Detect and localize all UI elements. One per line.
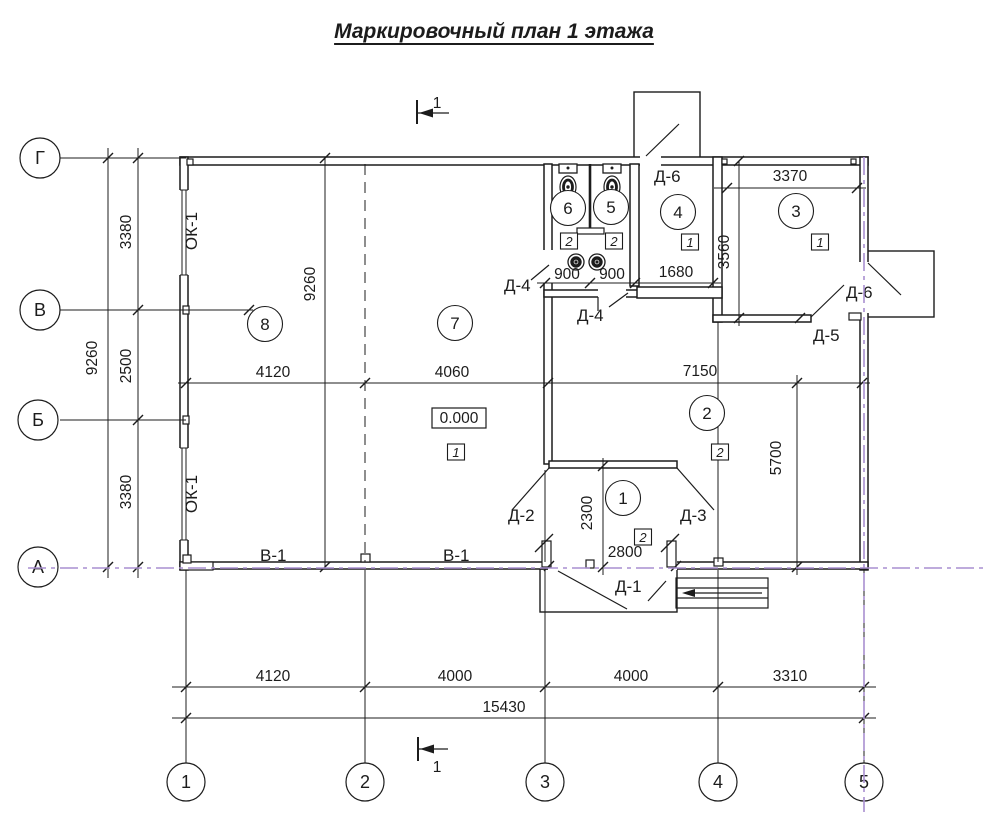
- room-number-8: 8: [260, 315, 269, 334]
- room-number-7: 7: [450, 314, 459, 333]
- axis-label-b: Б: [32, 410, 44, 430]
- mark-room-4: 1: [686, 235, 693, 250]
- axis-label-2: 2: [360, 772, 370, 792]
- wall-top: [180, 157, 868, 165]
- label-d3: Д-3: [680, 506, 707, 525]
- swing-d2: [512, 468, 549, 510]
- mark-room-1: 2: [638, 530, 647, 545]
- label-d2: Д-2: [508, 506, 535, 525]
- level-mark-value: 0.000: [440, 410, 479, 427]
- section-mark-bottom: 1: [418, 737, 448, 776]
- label-d4-b: Д-4: [577, 306, 604, 325]
- dim-3380-top: 3380: [118, 214, 135, 249]
- mark-room-7: 1: [452, 445, 459, 460]
- mark-room-6: 2: [564, 234, 573, 249]
- wall-wc-room4: [630, 164, 639, 286]
- label-v1-right: В-1: [443, 546, 469, 565]
- section-arrow-bottom: [420, 745, 434, 754]
- dim-15430: 15430: [482, 699, 525, 716]
- dim-4120-mid: 4120: [256, 364, 291, 381]
- opening-top-door: [640, 155, 661, 167]
- entrance-porch: [540, 569, 677, 612]
- dim-5700: 5700: [768, 440, 785, 475]
- dim-3310: 3310: [773, 668, 808, 685]
- plan-canvas: 1 1 Г В Б А 1 2 3 4: [0, 0, 988, 817]
- label-ok1-bottom: ОК-1: [182, 475, 201, 513]
- label-d6-top: Д-6: [654, 167, 681, 186]
- dim-900-right: 900: [599, 266, 625, 283]
- dim-3560: 3560: [716, 234, 733, 269]
- section-number-bottom: 1: [433, 759, 442, 776]
- label-v1-left: В-1: [260, 546, 286, 565]
- mark-room-5: 2: [609, 234, 618, 249]
- swing-d3: [677, 468, 714, 510]
- dim-4120-bottom: 4120: [256, 668, 291, 685]
- axis-label-3: 3: [540, 772, 550, 792]
- dimension-ticks: [103, 153, 869, 723]
- label-d6-right: Д-6: [846, 283, 873, 302]
- axis-label-a: А: [32, 557, 44, 577]
- dim-7150: 7150: [683, 363, 718, 380]
- wall-room4-bottom: [637, 287, 722, 298]
- dimension-lines: [108, 148, 876, 718]
- axis-label-v: В: [34, 300, 46, 320]
- right-porch: [866, 251, 934, 317]
- mark-room-2: 2: [715, 445, 724, 460]
- dim-4000-left: 4000: [438, 668, 473, 685]
- dim-3380-bottom: 3380: [118, 474, 135, 509]
- room-number-6: 6: [563, 199, 572, 218]
- dim-9260-inplan: 9260: [302, 266, 319, 301]
- steps-direction-arrow: [682, 589, 695, 597]
- dim-9260-left: 9260: [84, 340, 101, 375]
- axis-labels: Г В Б А 1 2 3 4 5: [32, 148, 869, 792]
- dim-4060: 4060: [435, 364, 470, 381]
- wc-partition-stub: [577, 228, 604, 234]
- leader-d1: [648, 581, 666, 601]
- section-number-top: 1: [433, 95, 442, 112]
- dim-2800: 2800: [608, 544, 643, 561]
- axis-bubbles: [18, 138, 883, 801]
- label-ok1-top: ОК-1: [182, 212, 201, 250]
- axis-label-1: 1: [181, 772, 191, 792]
- dim-1680: 1680: [659, 264, 694, 281]
- label-d4-a: Д-4: [504, 276, 531, 295]
- floor-plan-drawing: Маркировочный план 1 этажа: [0, 0, 988, 817]
- element-labels: Д-4 Д-4 Д-6 Д-6 Д-5 Д-2 Д-3 Д-1 ОК-1 ОК-…: [182, 167, 873, 596]
- room-number-2: 2: [702, 404, 711, 423]
- room-number-5: 5: [606, 198, 615, 217]
- axis-label-4: 4: [713, 772, 723, 792]
- top-porch: [634, 92, 700, 158]
- axis-label-g: Г: [35, 148, 45, 168]
- dim-4000-right: 4000: [614, 668, 649, 685]
- label-d1: Д-1: [615, 577, 642, 596]
- label-d5: Д-5: [813, 326, 840, 345]
- entry-post-left: [542, 541, 551, 567]
- section-arrow-top: [419, 109, 433, 118]
- room-number-4: 4: [673, 203, 682, 222]
- room-number-1: 1: [618, 489, 627, 508]
- porches: [540, 92, 934, 612]
- page-title: Маркировочный план 1 этажа: [0, 20, 988, 44]
- dim-2500: 2500: [118, 348, 135, 383]
- section-mark-top: 1: [417, 95, 449, 124]
- dim-2300: 2300: [579, 495, 596, 530]
- room-number-3: 3: [791, 202, 800, 221]
- mark-room-3: 1: [816, 235, 823, 250]
- dim-900-left: 900: [554, 266, 580, 283]
- dim-3370: 3370: [773, 168, 808, 185]
- swing-d5: [811, 285, 844, 317]
- wall-vestibule-top: [549, 461, 677, 468]
